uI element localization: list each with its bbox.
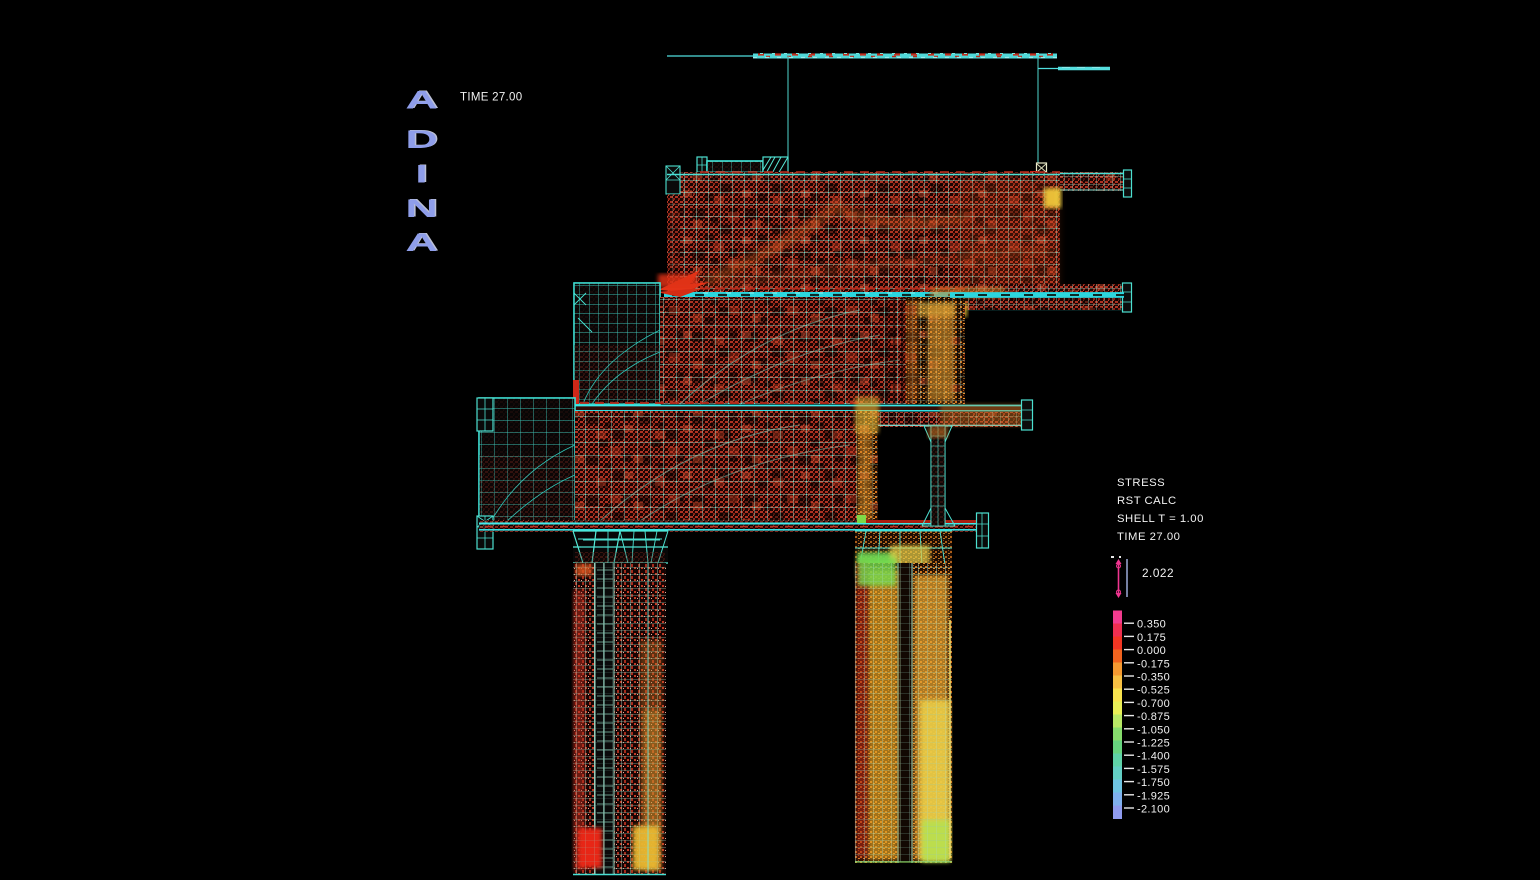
svg-text:-0.700: -0.700 [1137, 698, 1170, 710]
svg-text:0.175: 0.175 [1137, 632, 1166, 644]
svg-text:-1.750: -1.750 [1137, 777, 1170, 789]
svg-text:D: D [405, 125, 437, 154]
svg-text:A: A [405, 228, 437, 257]
svg-text:-1.575: -1.575 [1137, 764, 1170, 776]
svg-text:TIME 27.00: TIME 27.00 [1117, 531, 1180, 543]
svg-text:STRESS: STRESS [1117, 477, 1165, 489]
svg-text:0.350: 0.350 [1137, 619, 1166, 631]
svg-text:RST CALC: RST CALC [1117, 495, 1177, 507]
svg-text:A: A [405, 86, 437, 115]
svg-text:N: N [405, 194, 437, 223]
svg-text:-1.225: -1.225 [1137, 738, 1170, 750]
svg-text:2.022: 2.022 [1142, 566, 1174, 580]
svg-text:-2.100: -2.100 [1137, 804, 1170, 816]
svg-text:I: I [415, 160, 427, 189]
svg-text:0.000: 0.000 [1137, 645, 1166, 657]
svg-text:TIME 27.00: TIME 27.00 [460, 92, 522, 104]
svg-text:-1.050: -1.050 [1137, 724, 1170, 736]
svg-text:-0.525: -0.525 [1137, 685, 1170, 697]
svg-text:SHELL T = 1.00: SHELL T = 1.00 [1117, 513, 1204, 525]
svg-text:-0.350: -0.350 [1137, 672, 1170, 684]
svg-text:-1.925: -1.925 [1137, 790, 1170, 802]
svg-text:-0.175: -0.175 [1137, 658, 1170, 670]
svg-text:-0.875: -0.875 [1137, 711, 1170, 723]
svg-text:-1.400: -1.400 [1137, 751, 1170, 763]
